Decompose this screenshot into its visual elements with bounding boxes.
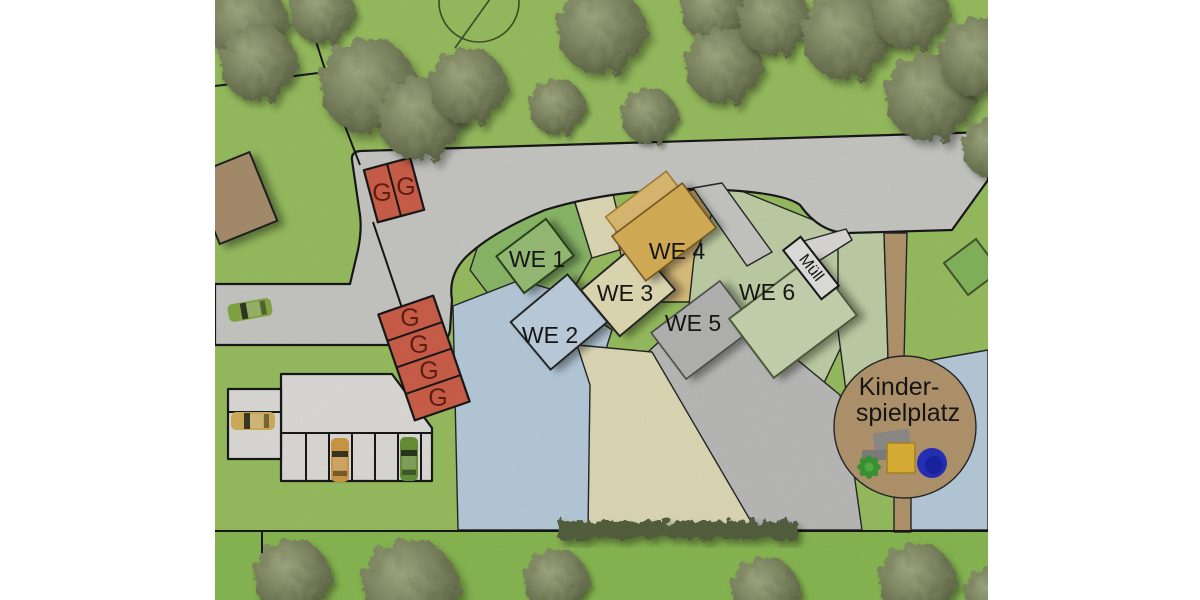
we4-label: WE 4 <box>649 238 705 264</box>
we5-label: WE 5 <box>665 310 721 336</box>
garage-label: G <box>409 331 428 359</box>
garage-label: G <box>396 173 415 201</box>
we6-label: WE 6 <box>739 279 795 305</box>
playground-label-line2: spielplatz <box>856 399 960 427</box>
playground-label-line1: Kinder- <box>859 373 940 401</box>
garage-label: G <box>419 357 438 385</box>
we1-label: WE 1 <box>509 246 565 272</box>
garage-label: G <box>400 304 419 332</box>
garage-label: G <box>372 179 391 207</box>
garage-label: G <box>428 384 447 412</box>
site-plan: WE 1 WE 2 WE 3 WE 4 WE 5 WE 6 G G G G G … <box>0 0 1200 600</box>
we3-label: WE 3 <box>597 280 653 306</box>
we2-label: WE 2 <box>522 322 578 348</box>
